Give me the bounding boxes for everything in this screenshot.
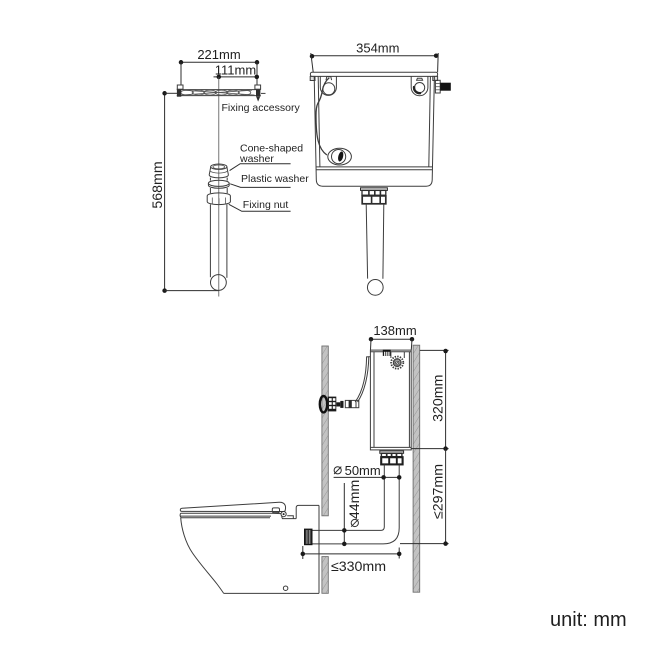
svg-text:138mm: 138mm	[373, 323, 416, 338]
svg-text:≤297mm: ≤297mm	[430, 464, 446, 519]
svg-text:320mm: 320mm	[430, 375, 446, 422]
svg-text:354mm: 354mm	[356, 40, 399, 55]
svg-text:50mm: 50mm	[345, 463, 381, 478]
svg-text:221mm: 221mm	[197, 47, 240, 62]
svg-text:Fixing accessory: Fixing accessory	[222, 102, 301, 114]
svg-text:44mm: 44mm	[347, 480, 363, 519]
svg-text:111mm: 111mm	[215, 62, 256, 77]
svg-text:Fixing nut: Fixing nut	[243, 199, 289, 211]
svg-text:Plastic washer: Plastic washer	[241, 173, 309, 185]
svg-text:568mm: 568mm	[150, 161, 166, 208]
svg-text:≤330mm: ≤330mm	[331, 559, 386, 575]
svg-text:unit: mm: unit: mm	[550, 609, 627, 631]
